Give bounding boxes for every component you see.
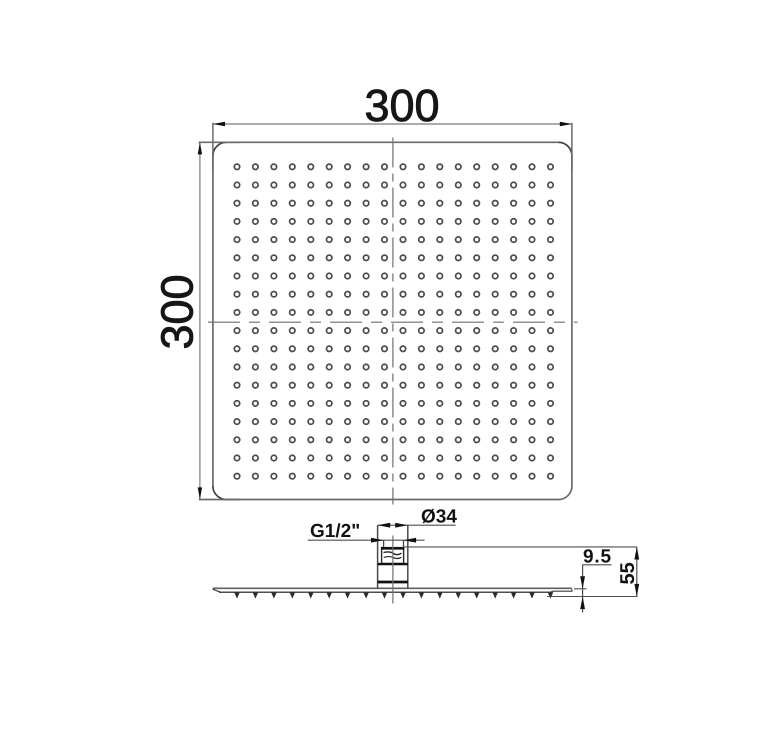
svg-text:Ø34: Ø34 [421, 507, 457, 528]
svg-text:G1/2": G1/2" [310, 521, 360, 542]
svg-text:9.5: 9.5 [583, 547, 612, 568]
svg-text:300: 300 [364, 80, 439, 131]
svg-text:300: 300 [152, 274, 203, 349]
svg-text:55: 55 [617, 562, 639, 584]
